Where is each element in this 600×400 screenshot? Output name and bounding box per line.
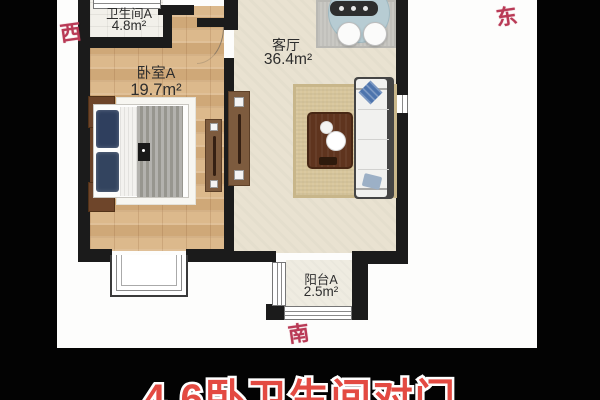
room-label-bedroom-area: 19.7m²	[130, 81, 181, 100]
caption-text: 4.6卧卫生间对门	[143, 366, 457, 400]
bed	[93, 104, 189, 198]
sofa	[354, 77, 394, 199]
coffee-table	[307, 112, 353, 169]
direction-west: 西	[58, 16, 83, 49]
bed-pillow	[96, 152, 119, 192]
table-cup	[320, 121, 333, 134]
bed-pillow	[96, 110, 119, 148]
east-wall-window	[396, 95, 408, 113]
bed-decor-object	[138, 143, 150, 161]
table-tray	[319, 157, 337, 165]
room-label-balcony-area: 2.5m²	[304, 284, 339, 299]
balcony-right-wall	[352, 251, 368, 320]
table-plate	[326, 131, 346, 151]
room-label-living-area: 36.4m²	[264, 51, 312, 69]
direction-east: 东	[494, 0, 519, 32]
room-label-bathroom-area: 4.8m²	[112, 18, 147, 33]
east-wall	[396, 0, 408, 264]
direction-south: 南	[286, 317, 311, 350]
entry-door-leaf	[197, 18, 224, 27]
bedroom-bay-window	[110, 255, 188, 297]
dining-chair	[363, 22, 387, 46]
dining-table-appliance	[330, 1, 378, 16]
balcony-left-window	[272, 262, 286, 306]
bedroom-tv-stand	[205, 119, 222, 192]
bathroom-bottom-wall	[78, 37, 164, 48]
screenshot-root: 卫生间A 4.8m² 卧室A 19.7m² 客厅 36.4m² 阳台A 2.5m…	[0, 0, 600, 400]
entry-corner-wall	[224, 0, 238, 30]
bed-sheet	[120, 107, 137, 196]
top-wall-segment	[158, 5, 194, 15]
dining-chair	[337, 22, 361, 46]
room-label-bedroom-name: 卧室A	[137, 62, 176, 83]
bedroom-bottom-wall-left	[78, 249, 112, 262]
balcony-corner-post	[266, 304, 286, 320]
living-tv-cabinet	[228, 91, 250, 186]
living-bottom-wall-left	[224, 251, 276, 262]
